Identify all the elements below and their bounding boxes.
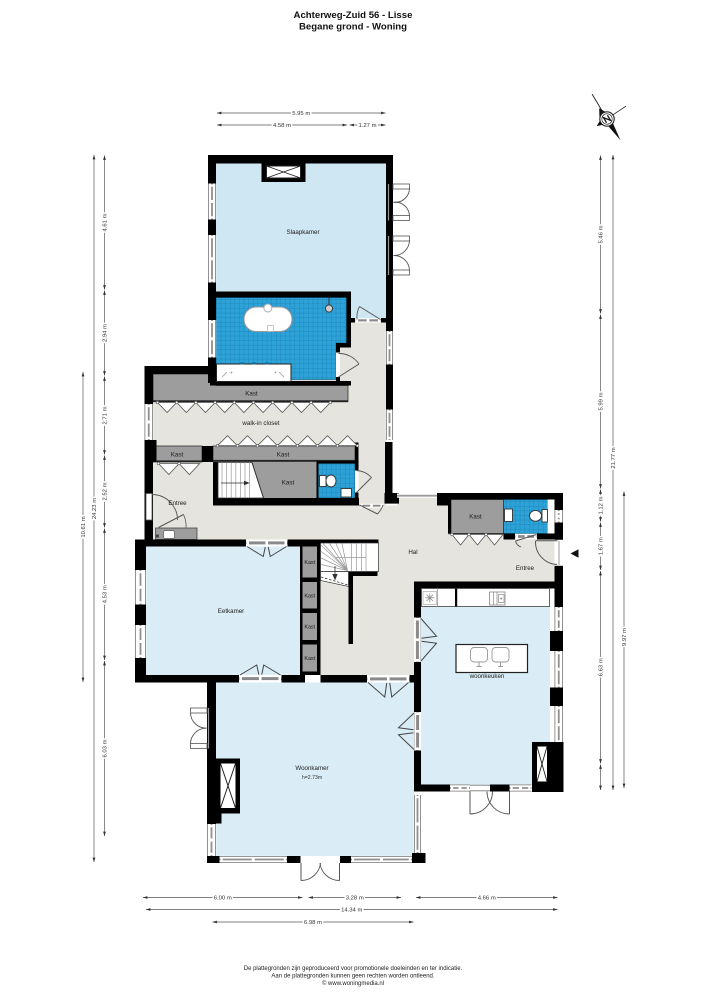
svg-text:6.00 m: 6.00 m [214, 896, 232, 902]
svg-text:21.77 m: 21.77 m [611, 447, 617, 468]
svg-text:1.67 m: 1.67 m [599, 537, 605, 555]
svg-text:10.61 m: 10.61 m [81, 516, 87, 537]
svg-text:Kast: Kast [171, 452, 184, 459]
svg-text:© www.woningmedia.nl: © www.woningmedia.nl [322, 980, 384, 987]
svg-text:Kast: Kast [304, 625, 315, 631]
svg-text:5.46 m: 5.46 m [599, 225, 605, 243]
svg-text:Kast: Kast [304, 560, 315, 566]
svg-text:1.27 m: 1.27 m [358, 123, 376, 129]
svg-text:6.03 m: 6.03 m [103, 739, 109, 757]
svg-text:4.66 m: 4.66 m [478, 896, 496, 902]
svg-text:Achterweg-Zuid 56 - Lisse: Achterweg-Zuid 56 - Lisse [294, 10, 413, 21]
svg-text:2.94 m: 2.94 m [103, 324, 109, 342]
svg-text:Hal: Hal [408, 549, 417, 556]
svg-text:5.95 m: 5.95 m [292, 111, 310, 117]
svg-text:Aan de plattegronden kunnen ge: Aan de plattegronden kunnen geen rechten… [271, 974, 434, 980]
svg-text:4.53 m: 4.53 m [103, 585, 109, 603]
svg-text:Kast: Kast [304, 656, 315, 662]
svg-text:3.28 m: 3.28 m [346, 896, 364, 902]
svg-text:9.97 m: 9.97 m [622, 628, 628, 646]
svg-text:6.63 m: 6.63 m [599, 658, 605, 676]
svg-text:6.98 m: 6.98 m [304, 920, 322, 926]
svg-text:5.99 m: 5.99 m [599, 392, 605, 410]
svg-text:Eetkamer: Eetkamer [218, 608, 244, 615]
svg-text:Kast: Kast [245, 391, 258, 398]
svg-text:Kast: Kast [282, 480, 295, 487]
svg-text:Begane grond - Woning: Begane grond - Woning [299, 22, 407, 33]
svg-text:14.34 m: 14.34 m [341, 908, 362, 914]
svg-text:1.12 m: 1.12 m [599, 496, 605, 514]
svg-text:2.52 m: 2.52 m [103, 482, 109, 500]
svg-text:woonkeuken: woonkeuken [469, 673, 505, 680]
svg-text:Slaapkamer: Slaapkamer [286, 229, 319, 236]
svg-text:De plattegronden zijn geproduc: De plattegronden zijn geproduceerd voor … [244, 966, 463, 972]
svg-text:4.58 m: 4.58 m [273, 123, 291, 129]
svg-text:walk-in closet: walk-in closet [241, 420, 279, 427]
svg-text:Kast: Kast [469, 514, 482, 521]
svg-text:2.71 m: 2.71 m [103, 406, 109, 424]
svg-text:Woonkamer: Woonkamer [295, 765, 328, 772]
svg-text:4.61 m: 4.61 m [103, 213, 109, 231]
svg-text:h=2.73m: h=2.73m [302, 775, 322, 781]
svg-text:Kast: Kast [277, 452, 290, 459]
svg-text:24.23 m: 24.23 m [92, 498, 98, 519]
svg-text:Entree: Entree [516, 565, 535, 572]
svg-text:Kast: Kast [304, 593, 315, 599]
svg-text:Entree: Entree [168, 500, 187, 507]
